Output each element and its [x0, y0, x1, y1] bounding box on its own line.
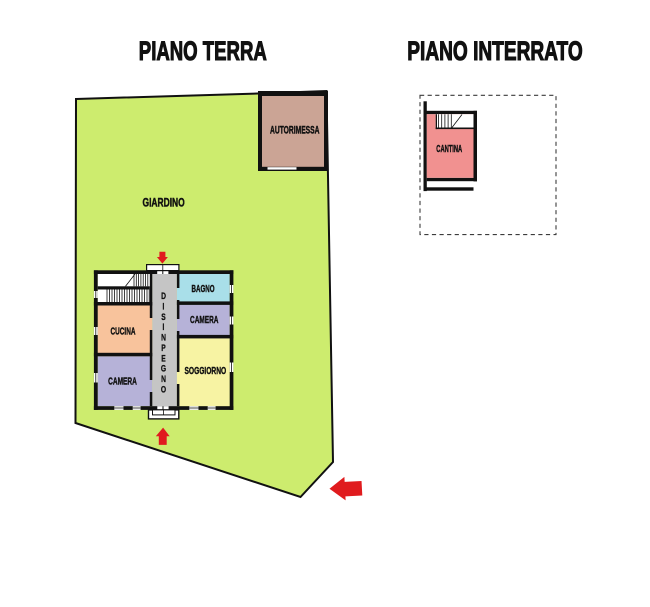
svg-text:CAMERA: CAMERA [108, 376, 137, 387]
svg-text:P: P [161, 343, 165, 353]
svg-text:PIANO TERRA: PIANO TERRA [139, 36, 267, 66]
svg-text:CANTINA: CANTINA [436, 144, 462, 155]
svg-text:I: I [163, 302, 165, 312]
svg-text:S: S [161, 312, 165, 322]
svg-text:SOGGIORNO: SOGGIORNO [185, 366, 227, 377]
svg-text:D: D [161, 291, 166, 301]
svg-text:O: O [161, 384, 166, 394]
svg-text:PIANO INTERRATO: PIANO INTERRATO [407, 36, 582, 66]
svg-text:N: N [161, 374, 166, 384]
svg-text:BAGNO: BAGNO [192, 284, 215, 295]
svg-text:E: E [161, 353, 165, 363]
svg-text:I: I [163, 322, 165, 332]
svg-text:GIARDINO: GIARDINO [143, 196, 185, 210]
svg-text:CUCINA: CUCINA [111, 326, 136, 337]
svg-text:AUTORIMESSA: AUTORIMESSA [270, 125, 320, 137]
svg-text:CAMERA: CAMERA [190, 315, 219, 326]
svg-text:G: G [161, 364, 166, 374]
svg-text:N: N [161, 333, 166, 343]
